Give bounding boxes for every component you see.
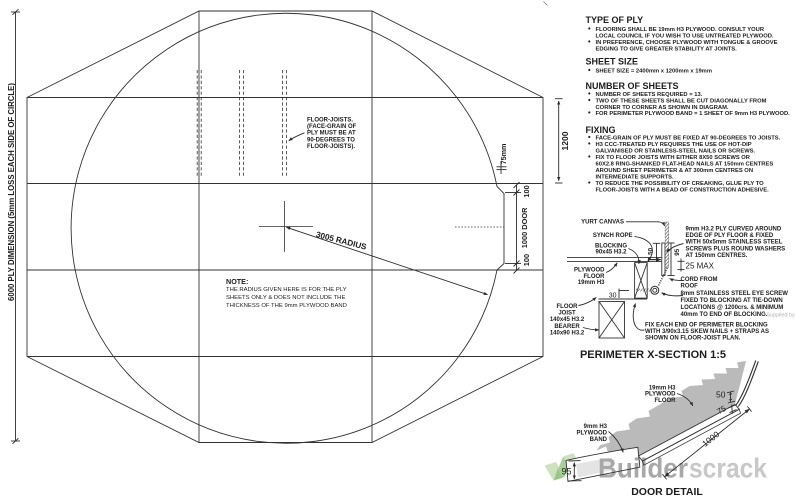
svg-text:9mm H3: 9mm H3 [584, 424, 608, 430]
svg-text:FIX TO FLOOR JOISTS WITH EITHE: FIX TO FLOOR JOISTS WITH EITHER 8X50 SCR… [596, 155, 751, 161]
svg-text:NUMBER OF SHEETS: NUMBER OF SHEETS [586, 81, 679, 91]
svg-text:SHEET SIZE: SHEET SIZE [586, 57, 639, 67]
svg-text:EDGING TO GIVE GREATER STABILI: EDGING TO GIVE GREATER STABILITY AT JOIN… [596, 47, 738, 53]
svg-text:•: • [588, 66, 591, 75]
svg-text:AROUND SHEET PERIMETER & AT 30: AROUND SHEET PERIMETER & AT 300mm CENTRE… [596, 168, 754, 174]
svg-text:•: • [588, 24, 591, 33]
svg-text:SHEETS ONLY & DOES NOT INCLUDE: SHEETS ONLY & DOES NOT INCLUDE THE [226, 295, 345, 301]
svg-text:•: • [588, 152, 591, 161]
svg-text:WITH 3/90x3.15 SKEW NAILS + ST: WITH 3/90x3.15 SKEW NAILS + STRAPS AS [645, 329, 769, 335]
svg-text:90x45 H3.2: 90x45 H3.2 [595, 250, 627, 256]
svg-text:SYNCH ROPE: SYNCH ROPE [593, 233, 633, 239]
svg-text:90-DEGREES TO: 90-DEGREES TO [307, 137, 355, 143]
svg-text:LOCAL COUNCIL IF YOU WISH TO U: LOCAL COUNCIL IF YOU WISH TO USE UNTREAT… [596, 34, 774, 40]
svg-text:FLOOR: FLOOR [655, 398, 677, 404]
svg-text:19mm H3: 19mm H3 [649, 385, 676, 391]
svg-text:•: • [588, 37, 591, 46]
svg-text:EDGE OF PLY FLOOR & FIXED: EDGE OF PLY FLOOR & FIXED [686, 233, 774, 239]
svg-text:40mm TO END OF BLOCKING.: 40mm TO END OF BLOCKING. [681, 312, 768, 318]
svg-text:CORNER TO CORNER AS SHOWN IN D: CORNER TO CORNER AS SHOWN IN DIAGRAM. [596, 105, 729, 111]
svg-text:IN PREFERENCE, CHOOSE PLYWOOD: IN PREFERENCE, CHOOSE PLYWOOD WITH TONGU… [596, 40, 778, 46]
svg-text:100: 100 [522, 185, 531, 197]
svg-text:140x45 H3.2: 140x45 H3.2 [550, 317, 585, 323]
svg-text:FLOOR: FLOOR [584, 274, 606, 280]
svg-text:6000 PLY DIMENSION (5mm LOSS E: 6000 PLY DIMENSION (5mm LOSS EACH SIDE O… [7, 83, 16, 301]
svg-text:3005 RADIUS: 3005 RADIUS [315, 230, 368, 252]
svg-text:Builder: Builder [598, 453, 688, 484]
svg-text:scrack: scrack [689, 453, 767, 484]
svg-text:FLOOR-JOISTS.: FLOOR-JOISTS. [307, 118, 353, 124]
svg-text:FLOOR: FLOOR [557, 304, 579, 310]
svg-text:FIX EACH END OF PERIMETER BLOC: FIX EACH END OF PERIMETER BLOCKING [645, 323, 768, 329]
svg-text:BAND: BAND [590, 437, 608, 443]
svg-text:30: 30 [609, 293, 617, 300]
svg-text:FLOOR-JOISTS).: FLOOR-JOISTS). [307, 144, 355, 150]
svg-text:ROOF: ROOF [681, 284, 699, 290]
svg-text:THE RADIUS GIVEN HERE IS FOR T: THE RADIUS GIVEN HERE IS FOR THE PLY [226, 287, 347, 293]
svg-text:•: • [588, 178, 591, 187]
svg-text:TYPE OF PLY: TYPE OF PLY [586, 15, 644, 25]
svg-text:NOTE:: NOTE: [226, 277, 248, 286]
svg-text:9mm H3.2 PLY CURVED AROUND: 9mm H3.2 PLY CURVED AROUND [686, 226, 782, 232]
svg-text:H3 CCC-TREATED PLY REQUIRES TH: H3 CCC-TREATED PLY REQUIRES THE USE OF H… [596, 142, 752, 148]
svg-text:SHOWN ON FLOOR-JOIST PLAN.: SHOWN ON FLOOR-JOIST PLAN. [645, 336, 741, 342]
svg-text:25 MAX: 25 MAX [686, 261, 715, 270]
svg-text:PLYWOOD: PLYWOOD [577, 431, 608, 437]
svg-text:INTERMEDIATE SUPPORTS.: INTERMEDIATE SUPPORTS. [596, 175, 675, 181]
svg-text:FLOOR-JOISTS WITH A BEAD OF CO: FLOOR-JOISTS WITH A BEAD OF CONSTRUCTION… [596, 188, 770, 194]
svg-text:19mm H3: 19mm H3 [578, 280, 605, 286]
svg-text:100: 100 [522, 254, 531, 266]
svg-text:BLOCKING: BLOCKING [595, 243, 627, 249]
svg-text:FIXED TO BLOCKING AT TIE-DOWN: FIXED TO BLOCKING AT TIE-DOWN [681, 298, 783, 304]
svg-text:FACE-GRAIN OF PLY MUST BE FIXE: FACE-GRAIN OF PLY MUST BE FIXED AT 90-DE… [596, 136, 781, 142]
svg-text:BEARER: BEARER [554, 324, 580, 330]
svg-text:SHEET SIZE = 2400mm x 1200mm x: SHEET SIZE = 2400mm x 1200mm x 19mm [596, 69, 712, 75]
svg-text:TWO OF THESE SHEETS SHALL BE C: TWO OF THESE SHEETS SHALL BE CUT DIAGONA… [596, 98, 767, 104]
svg-text:DOOR DETAIL: DOOR DETAIL [631, 486, 703, 498]
svg-text:WITH 50x5mm STAINLESS STEEL: WITH 50x5mm STAINLESS STEEL [686, 240, 783, 246]
svg-text:•: • [588, 139, 591, 148]
svg-text:140x90 H3.2: 140x90 H3.2 [550, 330, 585, 336]
svg-text:95: 95 [674, 248, 681, 255]
svg-text:Supplied by.: Supplied by. [767, 312, 795, 318]
svg-text:1000 DOOR: 1000 DOOR [520, 207, 529, 248]
svg-text:TO REDUCE THE POSSIBILITY OF C: TO REDUCE THE POSSIBILITY OF CREAKING, G… [596, 181, 765, 187]
svg-text:95: 95 [561, 466, 571, 476]
svg-text:JOIST: JOIST [558, 311, 576, 317]
svg-text:PLY MUST BE AT: PLY MUST BE AT [307, 131, 356, 137]
svg-text:PLYWOOD: PLYWOOD [645, 392, 676, 398]
svg-text:YURT CANVAS: YURT CANVAS [581, 220, 624, 226]
svg-text:(FACE-GRAIN OF: (FACE-GRAIN OF [307, 124, 357, 130]
svg-text:60X2.8 RING-SHANKED FLAT-HEAD: 60X2.8 RING-SHANKED FLAT-HEAD NAILS AT 1… [596, 162, 774, 168]
svg-text:FLOORING SHALL BE 19mm H3 PLYW: FLOORING SHALL BE 19mm H3 PLYWOOD. CONSU… [596, 27, 765, 33]
svg-text:NUMBER OF SHEETS REQUIRED = 13: NUMBER OF SHEETS REQUIRED = 13. [596, 92, 703, 98]
svg-text:•: • [588, 108, 591, 117]
svg-text:1200: 1200 [560, 131, 570, 150]
svg-text:50: 50 [716, 390, 726, 400]
svg-text:•: • [588, 95, 591, 104]
svg-text:CORD FROM: CORD FROM [681, 277, 718, 283]
svg-text:LOCATIONS @ 1200crs. & MINIMUM: LOCATIONS @ 1200crs. & MINIMUM [681, 305, 784, 311]
svg-text:8mm STAINLESS STEEL EYE SCREW: 8mm STAINLESS STEEL EYE SCREW [681, 291, 789, 297]
svg-text:PLYWOOD: PLYWOOD [574, 268, 605, 274]
svg-text:AT 150mm CENTRES.: AT 150mm CENTRES. [686, 253, 748, 259]
svg-text:50: 50 [648, 247, 655, 254]
svg-text:GALVANISED OR STAINLESS-STEEL: GALVANISED OR STAINLESS-STEEL NAILS OR S… [596, 149, 756, 155]
svg-text:FOR PERIMETER PLYWOOD BAND = 1: FOR PERIMETER PLYWOOD BAND = 1 SHEET OF … [596, 111, 791, 117]
svg-text:THICKNESS OF THE 9mm PLYWOOD B: THICKNESS OF THE 9mm PLYWOOD BAND [226, 303, 347, 309]
svg-text:PERIMETER X-SECTION 1:5: PERIMETER X-SECTION 1:5 [580, 349, 726, 361]
svg-text:SCREWS PLUS ROUND WASHERS: SCREWS PLUS ROUND WASHERS [686, 246, 786, 252]
